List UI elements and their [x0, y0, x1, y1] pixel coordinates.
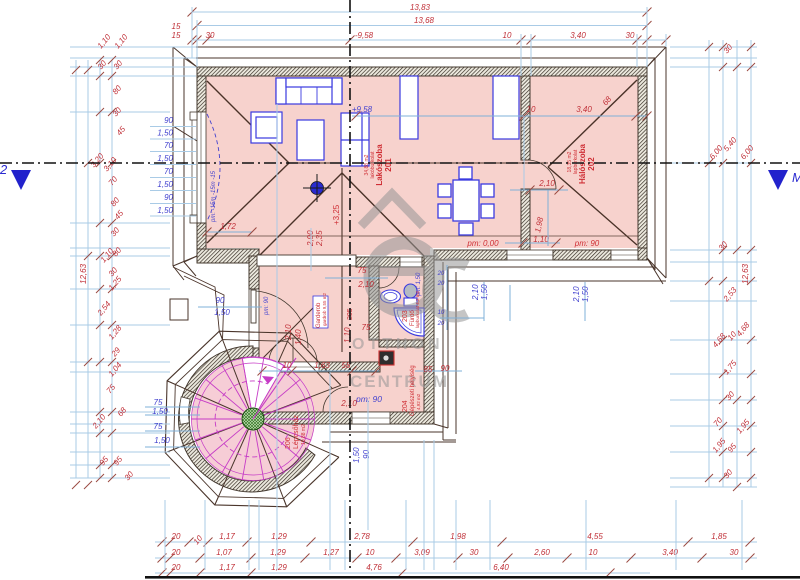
svg-text:70: 70 [164, 141, 173, 150]
svg-text:90: 90 [441, 364, 450, 373]
svg-text:1,98: 1,98 [450, 532, 466, 541]
svg-text:30: 30 [206, 31, 215, 40]
svg-text:1,50: 1,50 [157, 206, 173, 215]
svg-text:75: 75 [358, 266, 367, 275]
svg-text:20: 20 [437, 281, 445, 287]
svg-text:1,50: 1,50 [581, 286, 590, 302]
svg-text:15: 15 [172, 31, 181, 40]
svg-text:lapburkolat 4,2 m2: lapburkolat 4,2 m2 [415, 290, 420, 328]
svg-text:2,10: 2,10 [340, 399, 357, 408]
svg-text:pm: 90: pm: 90 [574, 239, 600, 248]
svg-text:1,07: 1,07 [216, 548, 232, 557]
svg-text:20: 20 [437, 321, 445, 327]
svg-text:1,50: 1,50 [154, 436, 170, 445]
svg-text:90: 90 [216, 296, 225, 305]
svg-text:1,27: 1,27 [323, 548, 339, 557]
svg-text:lakóburkolat: lakóburkolat [370, 151, 376, 179]
svg-text:2,10: 2,10 [357, 280, 374, 289]
svg-text:pm: 0,00: pm: 0,00 [466, 239, 499, 248]
svg-text:30: 30 [730, 548, 739, 557]
svg-text:2,78: 2,78 [353, 532, 370, 541]
svg-text:34,88 m2: 34,88 m2 [364, 154, 370, 175]
svg-text:1,72: 1,72 [220, 222, 236, 231]
svg-text:12,63: 12,63 [79, 263, 88, 284]
svg-text:Lépcsőház: Lépcsőház [293, 415, 300, 449]
svg-text:gardrob 9,55 m2: gardrob 9,55 m2 [322, 292, 327, 326]
svg-text:1,29: 1,29 [271, 532, 287, 541]
svg-text:lapburkolat: lapburkolat [573, 149, 579, 174]
svg-text:10: 10 [283, 361, 292, 370]
svg-text:2: 2 [0, 162, 8, 177]
svg-text:1,85: 1,85 [711, 532, 727, 541]
svg-text:4,92 m2: 4,92 m2 [416, 393, 421, 410]
svg-text:pm: -15m -15m -15: pm: -15m -15m -15 [211, 170, 217, 223]
svg-text:203: 203 [402, 310, 409, 322]
svg-text:+3,25: +3,25 [332, 204, 341, 225]
svg-text:3,09: 3,09 [414, 548, 430, 557]
svg-text:20: 20 [437, 271, 445, 277]
svg-text:1,17: 1,17 [219, 532, 235, 541]
svg-text:1,50: 1,50 [352, 447, 361, 463]
svg-text:2,60: 2,60 [533, 548, 550, 557]
svg-text:90: 90 [362, 450, 371, 459]
svg-text:3,40: 3,40 [570, 31, 586, 40]
svg-text:2,10: 2,10 [572, 286, 581, 303]
svg-text:18,35 m2: 18,35 m2 [567, 151, 573, 172]
svg-text:2,35: 2,35 [315, 230, 324, 247]
svg-text:1,50: 1,50 [157, 180, 173, 189]
svg-text:30: 30 [626, 31, 635, 40]
svg-text:90: 90 [164, 193, 173, 202]
svg-text:204: 204 [402, 400, 409, 412]
svg-text:10: 10 [589, 548, 598, 557]
svg-text:3,40: 3,40 [576, 105, 592, 114]
svg-text:12,63: 12,63 [741, 263, 750, 284]
svg-text:75: 75 [154, 422, 163, 431]
svg-text:6,40: 6,40 [493, 563, 509, 572]
svg-text:4,76: 4,76 [366, 563, 382, 572]
svg-text:2,10: 2,10 [538, 179, 555, 188]
svg-text:CENTRUM: CENTRUM [350, 372, 449, 391]
svg-text:30: 30 [470, 548, 479, 557]
svg-text:-9,58: -9,58 [355, 31, 374, 40]
svg-text:1,29: 1,29 [270, 548, 286, 557]
svg-text:90: 90 [164, 116, 173, 125]
svg-text:10: 10 [438, 310, 445, 316]
svg-text:1,17: 1,17 [219, 563, 235, 572]
svg-text:pm: 90: pm: 90 [264, 296, 270, 316]
svg-text:13,83: 13,83 [410, 3, 431, 12]
svg-text:1,40: 1,40 [294, 329, 303, 345]
svg-text:Lakószoba: Lakószoba [375, 144, 384, 186]
svg-text:2,10: 2,10 [471, 284, 480, 301]
svg-text:10: 10 [527, 105, 536, 114]
svg-text:206: 206 [285, 437, 292, 449]
svg-text:20: 20 [171, 532, 181, 541]
svg-text:1,50: 1,50 [157, 129, 173, 138]
svg-text:2,10: 2,10 [284, 324, 293, 341]
svg-text:75: 75 [362, 323, 371, 332]
svg-text:13,68: 13,68 [414, 16, 435, 25]
svg-text:10: 10 [503, 31, 512, 40]
svg-text:10,88 m2: 10,88 m2 [301, 424, 307, 445]
svg-text:1,50: 1,50 [480, 284, 489, 300]
svg-text:15: 15 [172, 22, 181, 31]
svg-text:1,63: 1,63 [314, 361, 330, 370]
svg-text:1,50: 1,50 [157, 154, 173, 163]
svg-text:1,29: 1,29 [271, 563, 287, 572]
svg-text:1,50: 1,50 [214, 308, 230, 317]
svg-text:85: 85 [424, 365, 433, 374]
svg-text:201: 201 [384, 158, 393, 172]
svg-text:20: 20 [171, 563, 181, 572]
svg-text:70: 70 [164, 167, 173, 176]
svg-text:M: M [792, 170, 800, 185]
svg-text:OTTHON: OTTHON [352, 336, 444, 353]
svg-text:20: 20 [171, 548, 181, 557]
svg-text:pm: 90: pm: 90 [355, 394, 382, 404]
svg-text:4,55: 4,55 [587, 532, 603, 541]
svg-text:1,50: 1,50 [152, 407, 168, 416]
svg-text:+9,58: +9,58 [352, 105, 373, 114]
svg-text:75: 75 [154, 398, 163, 407]
svg-text:10: 10 [366, 548, 375, 557]
